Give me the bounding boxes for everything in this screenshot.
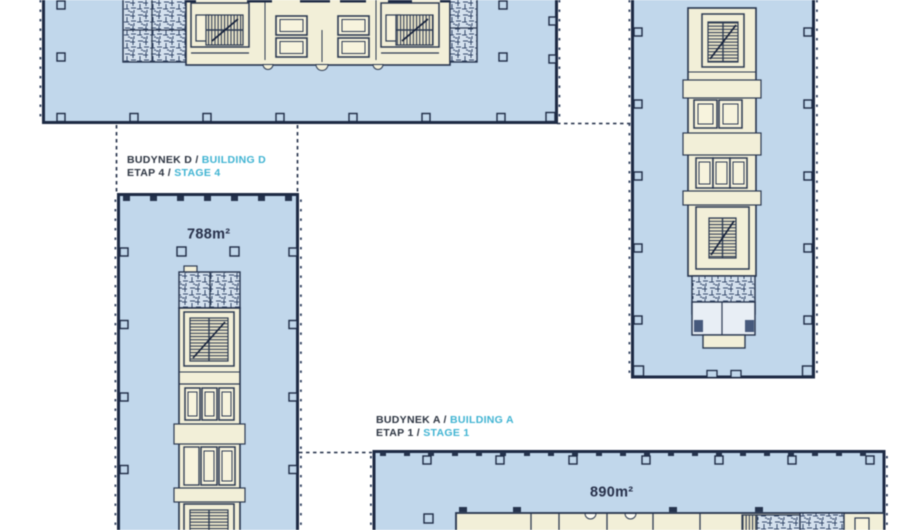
svg-text:ETAP 4 / STAGE 4: ETAP 4 / STAGE 4: [127, 167, 221, 179]
svg-text:BUDYNEK A / BUILDING A: BUDYNEK A / BUILDING A: [376, 414, 514, 426]
svg-text:ETAP 1 / STAGE 1: ETAP 1 / STAGE 1: [376, 427, 470, 439]
svg-text:788m²: 788m²: [187, 227, 230, 243]
svg-text:BUDYNEK D / BUILDING D: BUDYNEK D / BUILDING D: [127, 154, 266, 166]
svg-text:890m²: 890m²: [590, 485, 633, 501]
